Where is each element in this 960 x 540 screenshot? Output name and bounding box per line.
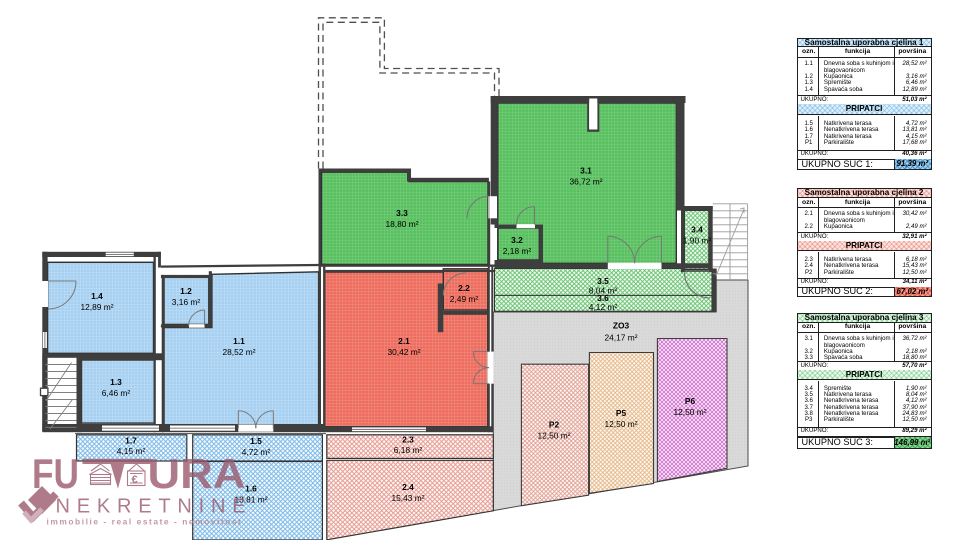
svg-text:12,50 m²: 12,50 m² [673, 407, 706, 417]
svg-text:URA: URA [148, 450, 246, 497]
svg-text:12,89 m²: 12,89 m² [80, 302, 113, 312]
svg-text:P6: P6 [685, 396, 696, 406]
svg-text:30,42 m²: 30,42 m² [387, 347, 420, 357]
svg-text:P2: P2 [549, 420, 560, 430]
svg-text:1.4: 1.4 [91, 291, 103, 301]
svg-text:2.1: 2.1 [398, 336, 410, 346]
svg-text:1.6: 1.6 [245, 484, 257, 494]
svg-text:NEKRETNINE: NEKRETNINE [56, 496, 253, 518]
svg-text:4,72 m²: 4,72 m² [242, 447, 271, 457]
svg-text:3.5: 3.5 [597, 276, 609, 286]
svg-text:1.7: 1.7 [125, 436, 137, 446]
svg-text:36,72 m²: 36,72 m² [569, 177, 602, 187]
svg-text:2.2: 2.2 [458, 283, 470, 293]
svg-text:2.3: 2.3 [402, 435, 414, 445]
svg-text:3.2: 3.2 [511, 235, 523, 245]
svg-text:2,18 m²: 2,18 m² [503, 246, 532, 256]
svg-text:1.1: 1.1 [233, 336, 245, 346]
svg-text:18,80 m²: 18,80 m² [385, 219, 418, 229]
svg-text:6,46 m²: 6,46 m² [102, 388, 131, 398]
svg-text:3,16 m²: 3,16 m² [172, 297, 201, 307]
svg-text:1.2: 1.2 [180, 286, 192, 296]
svg-text:15,43 m²: 15,43 m² [391, 493, 424, 503]
svg-text:€: € [132, 474, 138, 486]
svg-text:ZO3: ZO3 [613, 321, 630, 331]
svg-text:24,17 m²: 24,17 m² [604, 333, 637, 343]
svg-text:3.1: 3.1 [580, 166, 592, 176]
svg-text:28,52 m²: 28,52 m² [222, 347, 255, 357]
svg-text:1,90 m²: 1,90 m² [683, 236, 712, 246]
svg-text:4,12 m²: 4,12 m² [589, 302, 618, 312]
svg-text:12,50 m²: 12,50 m² [604, 419, 637, 429]
svg-text:3.3: 3.3 [396, 208, 408, 218]
svg-text:3.4: 3.4 [691, 225, 703, 235]
svg-text:4,15 m²: 4,15 m² [117, 446, 146, 456]
svg-text:P5: P5 [616, 408, 627, 418]
svg-text:1.3: 1.3 [110, 377, 122, 387]
svg-text:12,50 m²: 12,50 m² [537, 431, 570, 441]
svg-text:2.4: 2.4 [402, 482, 414, 492]
svg-text:2,49 m²: 2,49 m² [450, 294, 479, 304]
svg-text:1.5: 1.5 [250, 436, 262, 446]
svg-text:immobilie - real estate - nemo: immobilie - real estate - nemovitost [47, 517, 243, 527]
svg-text:6,18 m²: 6,18 m² [394, 445, 423, 455]
